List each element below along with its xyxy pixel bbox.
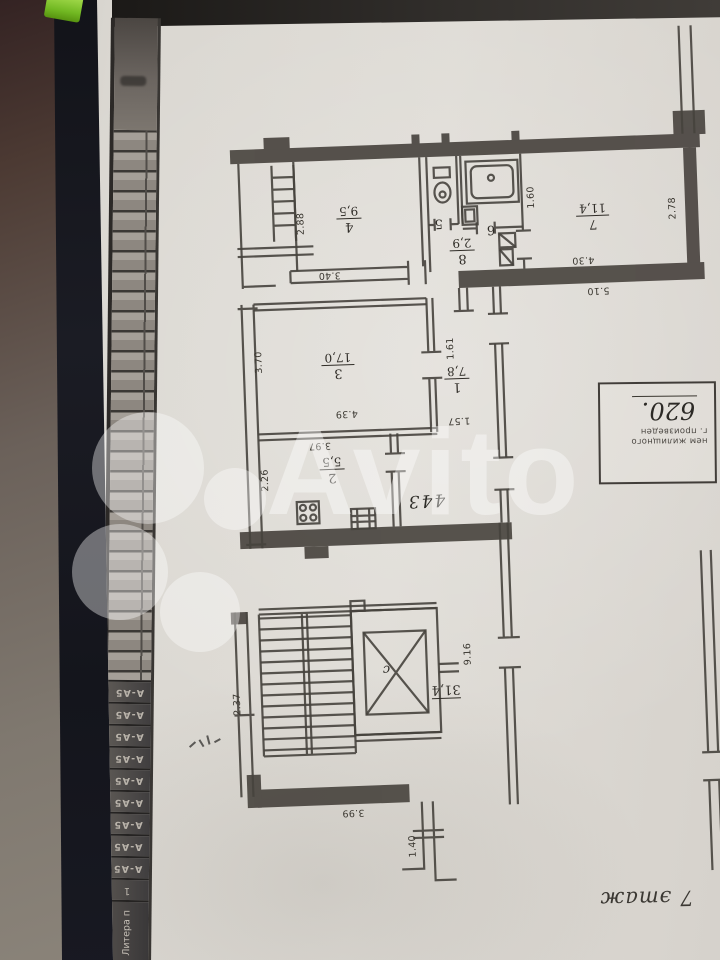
binding-cell: А-А5	[107, 790, 150, 812]
binding-cell: А-А5	[107, 768, 150, 790]
room-8-label: 8 2,9	[449, 234, 475, 265]
room-4-label: 4 9,5	[336, 203, 362, 234]
dim-1-60: 1.60	[525, 186, 537, 209]
dim-4-39: 4.39	[335, 408, 358, 420]
apartment-number: 443	[406, 489, 445, 511]
dim-3-99: 3.99	[342, 807, 365, 819]
stamp-line-1: нем жилищного	[607, 435, 707, 447]
dim-2-26: 2.26	[259, 469, 271, 492]
binding-cell: А-А5	[108, 680, 151, 702]
binding-cells: А-А5 А-А5 А-А5 А-А5 А-А5 А-А5 А-А5 А-А5 …	[106, 680, 151, 878]
floor-plan: 4 9,5 5 6 8 2,9 7 11,4 3 17,0 1 7,8 2	[133, 10, 720, 950]
dim-5-10: 5.10	[587, 284, 610, 296]
binding-cell: А-А5	[108, 702, 151, 724]
room-2-label: 2 5,5	[319, 453, 345, 484]
binding-cell: А-А5	[106, 834, 149, 856]
dim-2-88: 2.88	[295, 213, 307, 236]
binding-cell: А-А5	[106, 856, 149, 878]
green-sticker	[44, 0, 85, 23]
room-7-label: 7 11,4	[576, 199, 610, 230]
dim-1-61: 1.61	[445, 337, 457, 360]
stamp-line-2: г. произведен	[607, 424, 707, 436]
binding-cell: А-А5	[107, 746, 150, 768]
dim-1-57: 1.57	[448, 415, 471, 427]
bti-stamp: нем жилищного г. произведен 620.	[598, 381, 717, 484]
dim-3-97: 3.97	[308, 440, 331, 452]
room-6-label: 6	[487, 222, 496, 237]
dim-3-40: 3.40	[318, 269, 341, 281]
room-3-label: 3 17,0	[321, 349, 355, 380]
dim-1-40: 1.40	[407, 835, 419, 858]
room-5-label: 5	[434, 216, 443, 231]
dim-2-78: 2.78	[667, 197, 679, 220]
binding-cell: А-А5	[107, 724, 150, 746]
corridor-area-label: 31,4	[431, 681, 461, 699]
binding-row-end: 1	[106, 878, 149, 900]
photo-scene: А-А5 А-А5 А-А5 А-А5 А-А5 А-А5 А-А5 А-А5 …	[0, 0, 720, 960]
floor-note: 7 этаж	[599, 886, 694, 912]
dim-3-70: 3.70	[253, 351, 265, 374]
dim-4-30: 4.30	[572, 254, 595, 266]
elevator-letter: с	[383, 662, 391, 677]
room-1-label: 1 7,8	[444, 363, 470, 394]
dim-2-37: 2.37	[232, 693, 244, 716]
dim-9-16: 9.16	[462, 643, 474, 666]
pencil-scribble	[189, 735, 220, 747]
binding-cell: А-А5	[106, 812, 149, 834]
stamp-number: 620.	[632, 395, 698, 423]
